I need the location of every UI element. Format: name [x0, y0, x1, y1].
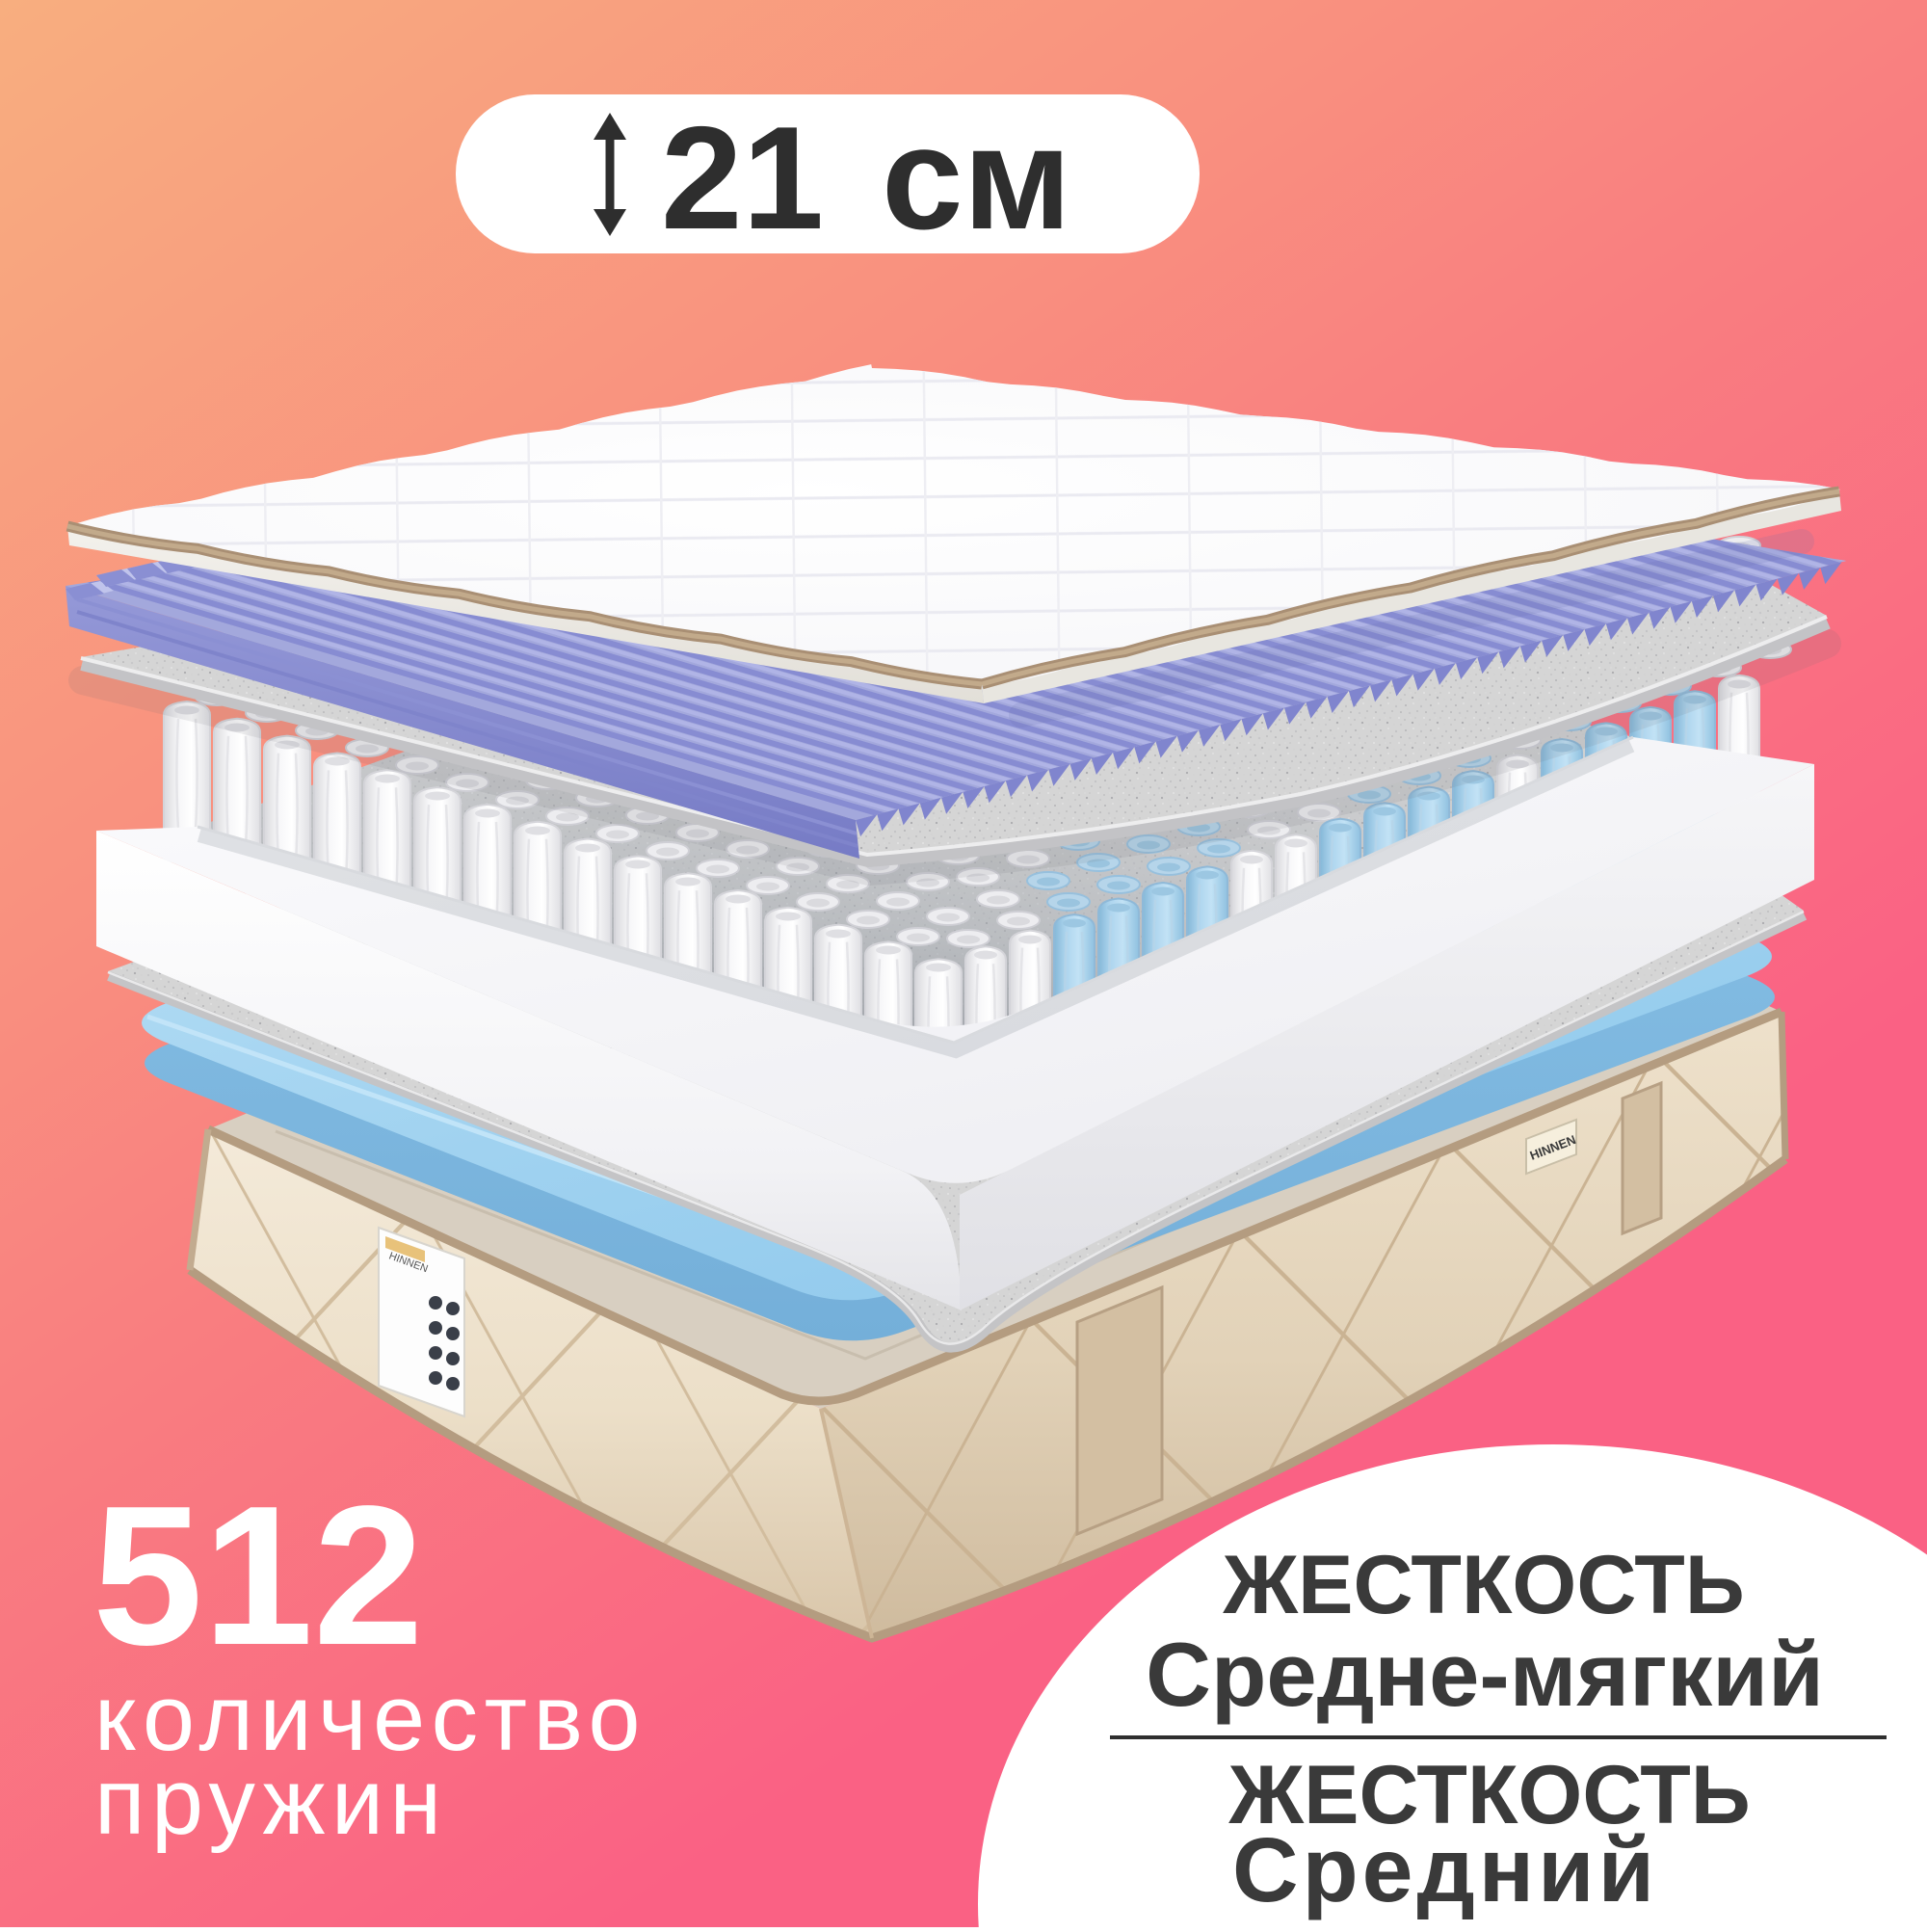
svg-text:Средний: Средний	[1232, 1819, 1658, 1921]
svg-text:пружин: пружин	[94, 1749, 448, 1854]
svg-text:см: см	[882, 96, 1071, 260]
svg-text:Средне-мягкий: Средне-мягкий	[1146, 1624, 1824, 1725]
svg-text:21: 21	[661, 96, 824, 260]
svg-text:ЖЕСТКОСТЬ: ЖЕСТКОСТЬ	[1222, 1539, 1744, 1631]
svg-text:512: 512	[92, 1465, 424, 1686]
